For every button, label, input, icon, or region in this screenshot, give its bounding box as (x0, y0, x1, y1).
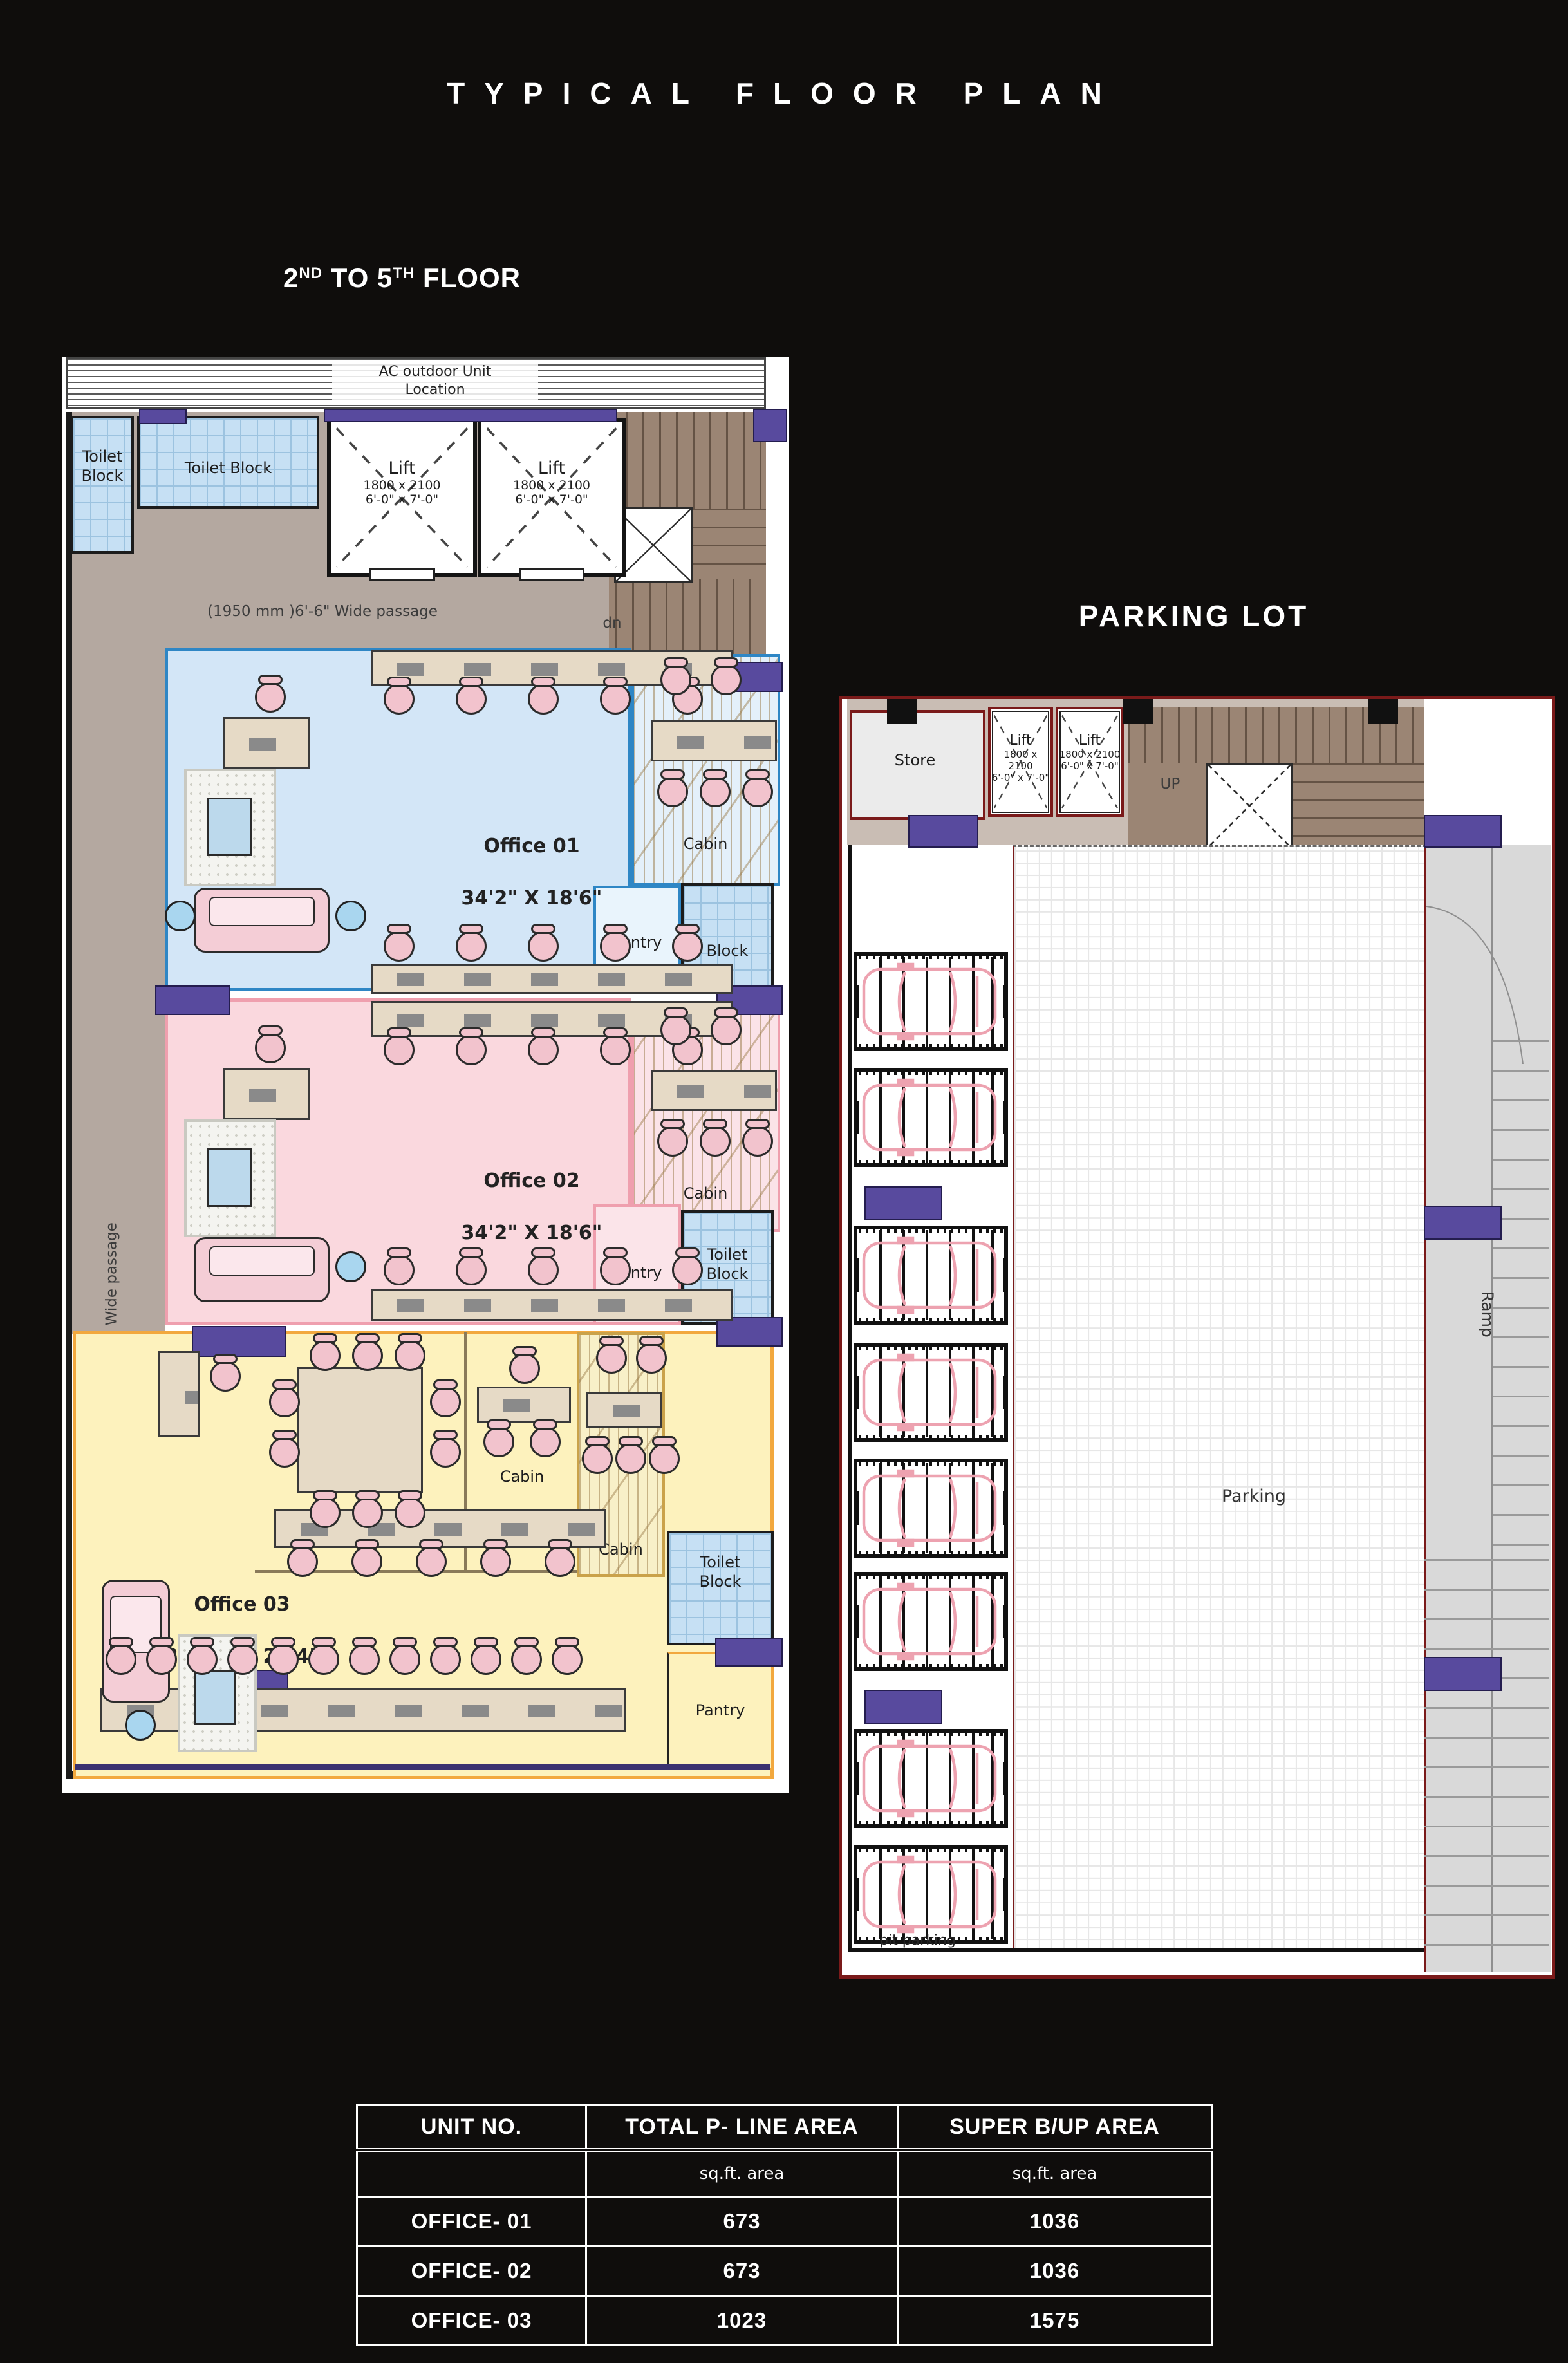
chair (528, 931, 559, 962)
chair (700, 1126, 731, 1157)
chair (582, 1443, 613, 1474)
column-black (887, 699, 917, 724)
area-table: UNIT NO. TOTAL P- LINE AREA SUPER B/UP A… (356, 2104, 1213, 2346)
page-canvas: TYPICAL FLOOR PLAN 2ND TO 5TH FLOOR AC o… (0, 0, 1568, 2363)
round-table (335, 901, 366, 931)
chair (106, 1644, 136, 1675)
chair (227, 1644, 258, 1675)
table-row: OFFICE- 02 673 1036 (357, 2246, 1212, 2296)
chair (255, 1032, 286, 1063)
sofa (194, 888, 330, 953)
chair (530, 1426, 561, 1457)
chair (480, 1546, 511, 1577)
chair (456, 1034, 487, 1065)
chair (310, 1497, 341, 1528)
chair (596, 1343, 627, 1374)
chair (600, 684, 631, 715)
floor-heading-part: TO 5 (322, 263, 393, 293)
chair (349, 1644, 380, 1675)
column-black (1368, 699, 1398, 724)
parking-lot-plan: Store Lift 1800 x 2100 6'-0" x 7'-0" Lif… (839, 696, 1555, 1979)
chair (210, 1361, 241, 1392)
coffee-table (207, 798, 252, 856)
column-block (753, 409, 787, 442)
chair (430, 1437, 461, 1468)
chair (545, 1546, 575, 1577)
parking-decor (842, 699, 1552, 1975)
car-stack-platform (854, 1063, 1008, 1172)
coffee-table (194, 1670, 236, 1725)
chair (483, 1426, 514, 1457)
column-block (715, 1638, 783, 1667)
chair (384, 684, 415, 715)
chair (269, 1387, 300, 1417)
chair (509, 1353, 540, 1384)
chair (700, 776, 731, 807)
column-block (1424, 1657, 1502, 1691)
chair (528, 1255, 559, 1285)
floorplan-decor (62, 357, 789, 1793)
car-stack-platform (854, 1454, 1008, 1562)
desk (371, 1289, 733, 1321)
sub-sqft-1: sq.ft. area (586, 2150, 898, 2197)
col-pline-area: TOTAL P- LINE AREA (586, 2105, 898, 2151)
chair (384, 931, 415, 962)
chair (351, 1546, 382, 1577)
column-black (1123, 699, 1153, 724)
chair (600, 1034, 631, 1065)
chair (287, 1546, 318, 1577)
chair (430, 1387, 461, 1417)
chair (395, 1497, 425, 1528)
column-block (716, 1317, 783, 1347)
floor-heading-part: FLOOR (415, 263, 521, 293)
chair (636, 1343, 667, 1374)
chair (657, 776, 688, 807)
chair (456, 1255, 487, 1285)
floor-heading-part: 2 (283, 263, 299, 293)
chair (456, 931, 487, 962)
floor-heading-sup: TH (393, 265, 415, 282)
pline-cell: 1023 (586, 2296, 898, 2346)
chair (742, 1126, 773, 1157)
chair (268, 1644, 299, 1675)
chair (742, 776, 773, 807)
chair (672, 931, 703, 962)
chair (456, 684, 487, 715)
floor-range-heading: 2ND TO 5TH FLOOR (283, 263, 521, 294)
super-cell: 1036 (898, 2246, 1212, 2296)
unit-cell: OFFICE- 02 (357, 2246, 586, 2296)
sofa (194, 1237, 330, 1302)
typical-floor-plan: AC outdoor Unit Location up dn Toilet Bl… (62, 357, 789, 1793)
chair (384, 1255, 415, 1285)
car-stack-platform (854, 1724, 1008, 1833)
chair (528, 1034, 559, 1065)
desk (651, 720, 777, 761)
car-stack-platform (854, 948, 1008, 1056)
chair (649, 1443, 680, 1474)
chair (528, 684, 559, 715)
chair (352, 1497, 383, 1528)
chair (615, 1443, 646, 1474)
sub-blank (357, 2150, 586, 2197)
column-block (1424, 815, 1502, 848)
super-cell: 1036 (898, 2197, 1212, 2246)
chair (711, 1014, 742, 1045)
floor-heading-sup: ND (299, 265, 322, 282)
table-header-row: UNIT NO. TOTAL P- LINE AREA SUPER B/UP A… (357, 2105, 1212, 2151)
desk (223, 1068, 310, 1120)
chair (389, 1644, 420, 1675)
chair (511, 1644, 542, 1675)
column-block (155, 985, 230, 1015)
table-row: OFFICE- 03 1023 1575 (357, 2296, 1212, 2346)
desk (586, 1392, 662, 1428)
column-block (864, 1186, 942, 1220)
column-block (324, 409, 617, 422)
chair (146, 1644, 177, 1675)
column-block (1424, 1206, 1502, 1240)
chair (269, 1437, 300, 1468)
table-row: OFFICE- 01 673 1036 (357, 2197, 1212, 2246)
chair (657, 1126, 688, 1157)
desk (477, 1387, 571, 1423)
column-block (864, 1690, 942, 1724)
unit-cell: OFFICE- 01 (357, 2197, 586, 2246)
chair (308, 1644, 339, 1675)
car-stack-platform (854, 1221, 1008, 1329)
desk (223, 717, 310, 769)
column-block (908, 815, 978, 848)
sub-sqft-2: sq.ft. area (898, 2150, 1212, 2197)
pline-cell: 673 (586, 2246, 898, 2296)
chair (552, 1644, 583, 1675)
desk (371, 964, 733, 994)
chair (310, 1340, 341, 1371)
car-stack-platform (854, 1338, 1008, 1446)
col-super-area: SUPER B/UP AREA (898, 2105, 1212, 2151)
desk (158, 1351, 200, 1437)
table-subheader-row: sq.ft. area sq.ft. area (357, 2150, 1212, 2197)
parking-lot-title: PARKING LOT (839, 599, 1549, 633)
chair (660, 1014, 691, 1045)
car-stack-platform (854, 1567, 1008, 1676)
chair (600, 1255, 631, 1285)
column-block (139, 409, 187, 424)
chair (430, 1644, 461, 1675)
chair (711, 664, 742, 695)
coffee-table (207, 1148, 252, 1207)
round-table (125, 1710, 156, 1741)
chair (352, 1340, 383, 1371)
unit-cell: OFFICE- 03 (357, 2296, 586, 2346)
round-table (165, 901, 196, 931)
column-block (192, 1326, 286, 1357)
pline-cell: 673 (586, 2197, 898, 2246)
col-unit-no: UNIT NO. (357, 2105, 586, 2151)
desk (651, 1070, 777, 1111)
chair (395, 1340, 425, 1371)
chair (255, 682, 286, 713)
chair (471, 1644, 501, 1675)
chair (672, 1255, 703, 1285)
chair (416, 1546, 447, 1577)
chair (660, 664, 691, 695)
chair (600, 931, 631, 962)
chair (187, 1644, 218, 1675)
super-cell: 1575 (898, 2296, 1212, 2346)
conference-table (297, 1367, 423, 1493)
page-title: TYPICAL FLOOR PLAN (0, 76, 1568, 111)
round-table (335, 1251, 366, 1282)
pit-parking-label: pit parking (879, 1932, 956, 1948)
chair (384, 1034, 415, 1065)
